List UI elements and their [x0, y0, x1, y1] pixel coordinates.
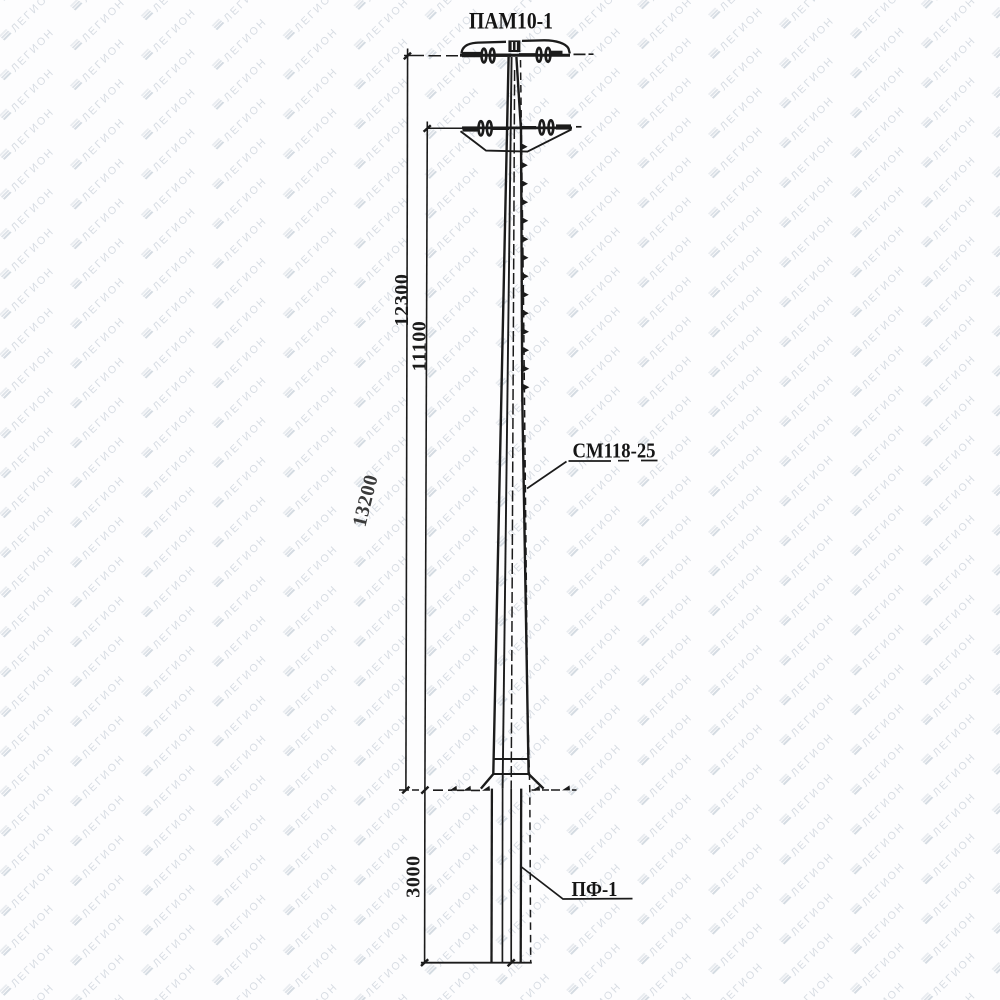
- svg-text:ПАМ10-1: ПАМ10-1: [469, 9, 553, 34]
- svg-text:3000: 3000: [402, 855, 424, 897]
- svg-text:11100: 11100: [408, 321, 430, 372]
- svg-text:12300: 12300: [391, 274, 413, 327]
- svg-text:СМ118-25: СМ118-25: [573, 439, 656, 463]
- svg-text:ПФ-1: ПФ-1: [572, 877, 618, 901]
